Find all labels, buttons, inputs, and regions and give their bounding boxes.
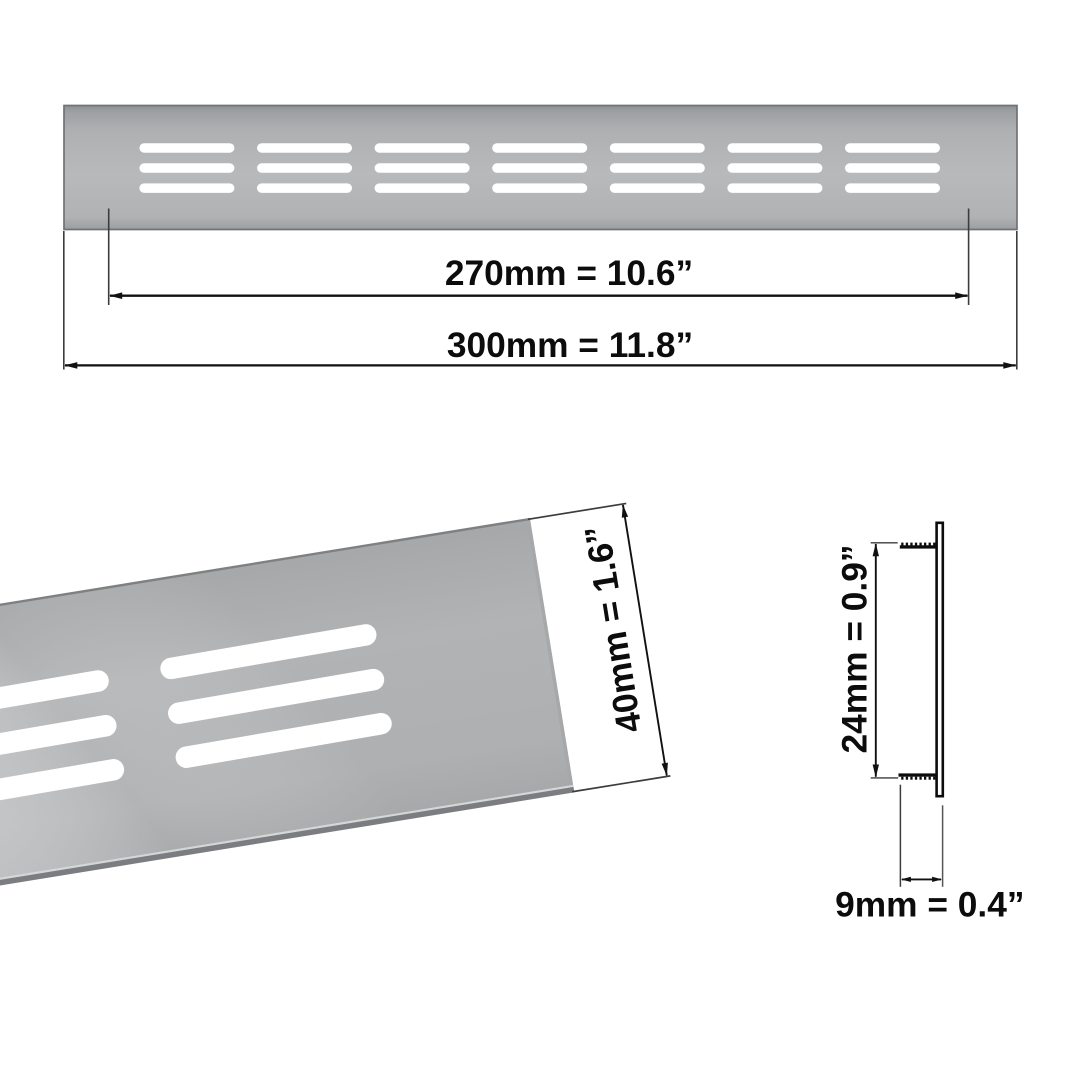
svg-text:270mm = 10.6”: 270mm = 10.6”: [445, 254, 693, 293]
svg-text:9mm = 0.4”: 9mm = 0.4”: [835, 885, 1024, 924]
svg-text:40mm = 1.6”: 40mm = 1.6”: [578, 523, 650, 736]
svg-text:24mm = 0.9”: 24mm = 0.9”: [836, 545, 875, 754]
svg-text:300mm = 11.8”: 300mm = 11.8”: [447, 326, 693, 365]
